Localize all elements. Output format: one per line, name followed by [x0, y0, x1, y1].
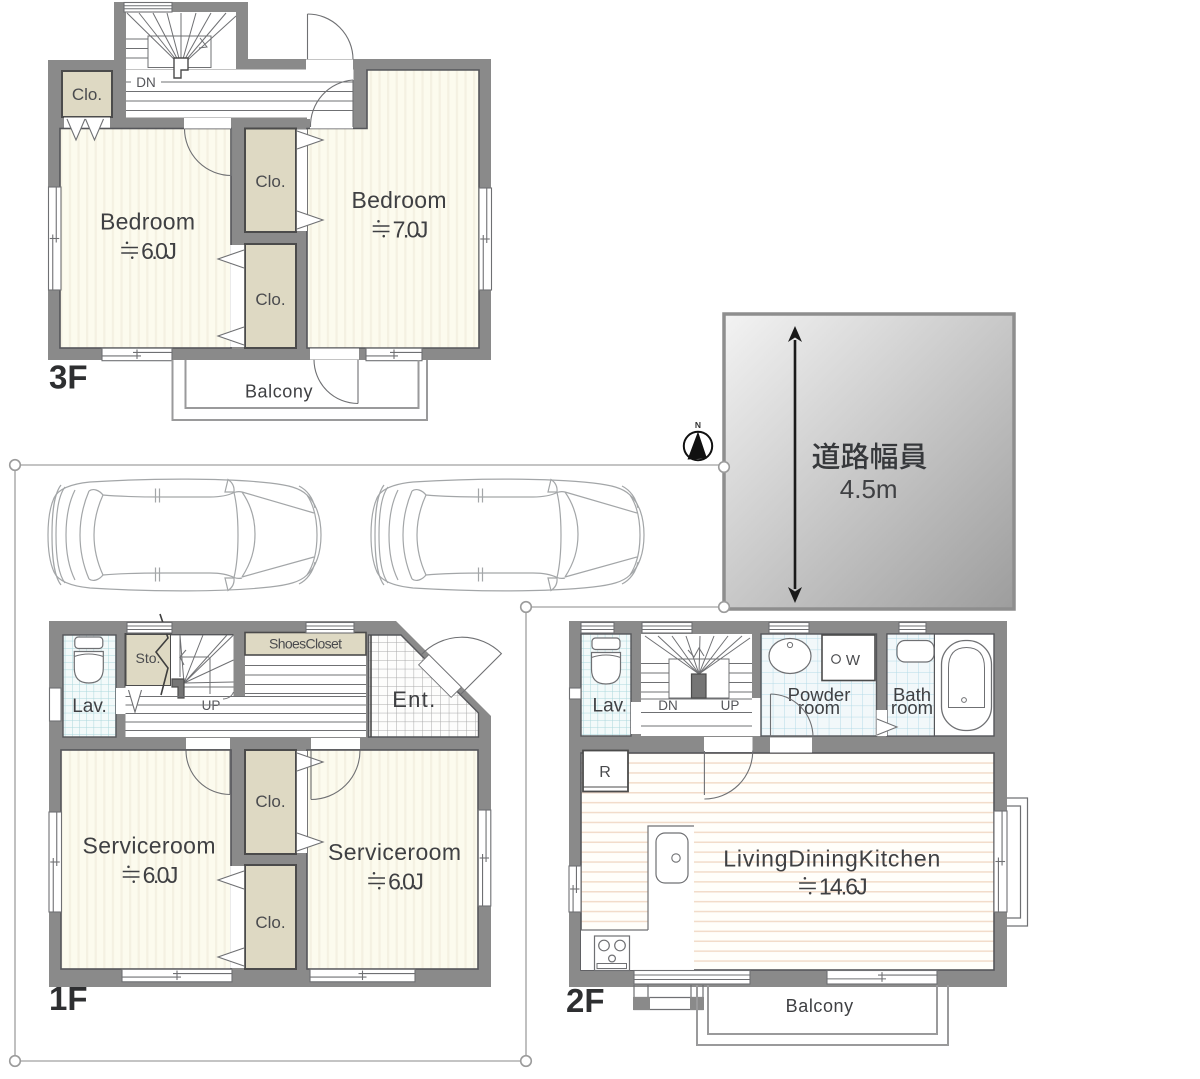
svg-text:ShoesCloset: ShoesCloset — [269, 636, 342, 652]
svg-text:Clo.: Clo. — [255, 913, 285, 932]
svg-text:N: N — [695, 420, 701, 430]
svg-text:Clo.: Clo. — [255, 792, 285, 811]
svg-text:Clo.: Clo. — [72, 85, 102, 104]
svg-text:LivingDiningKitchen: LivingDiningKitchen — [723, 846, 940, 872]
svg-text:6.0J: 6.0J — [141, 238, 177, 264]
svg-text:R: R — [599, 764, 611, 781]
svg-text:6.0J: 6.0J — [143, 862, 179, 888]
svg-text:Bedroom: Bedroom — [100, 209, 195, 235]
svg-text:room: room — [891, 697, 933, 718]
svg-text:W: W — [846, 652, 861, 669]
svg-text:Ent.: Ent. — [392, 687, 435, 712]
svg-text:Lav.: Lav. — [72, 696, 107, 717]
svg-text:7.0J: 7.0J — [393, 217, 429, 243]
svg-text:Serviceroom: Serviceroom — [328, 839, 461, 865]
svg-text:Clo.: Clo. — [255, 290, 285, 309]
svg-text:DN: DN — [136, 75, 156, 90]
svg-text:room: room — [798, 697, 840, 718]
svg-text:3F: 3F — [49, 359, 88, 396]
svg-text:Balcony: Balcony — [245, 382, 313, 402]
svg-text:14.6J: 14.6J — [819, 874, 868, 900]
svg-text:Clo.: Clo. — [255, 172, 285, 191]
svg-text:DN: DN — [658, 698, 678, 713]
svg-text:2F: 2F — [566, 982, 605, 1019]
svg-text:UP: UP — [721, 698, 740, 713]
svg-text:1F: 1F — [49, 980, 88, 1017]
svg-text:Lav.: Lav. — [593, 696, 628, 717]
svg-text:4.5m: 4.5m — [840, 474, 898, 504]
svg-text:6.0J: 6.0J — [388, 869, 424, 895]
svg-text:Bedroom: Bedroom — [352, 187, 447, 213]
svg-text:Serviceroom: Serviceroom — [83, 833, 216, 859]
svg-text:Balcony: Balcony — [786, 996, 854, 1016]
